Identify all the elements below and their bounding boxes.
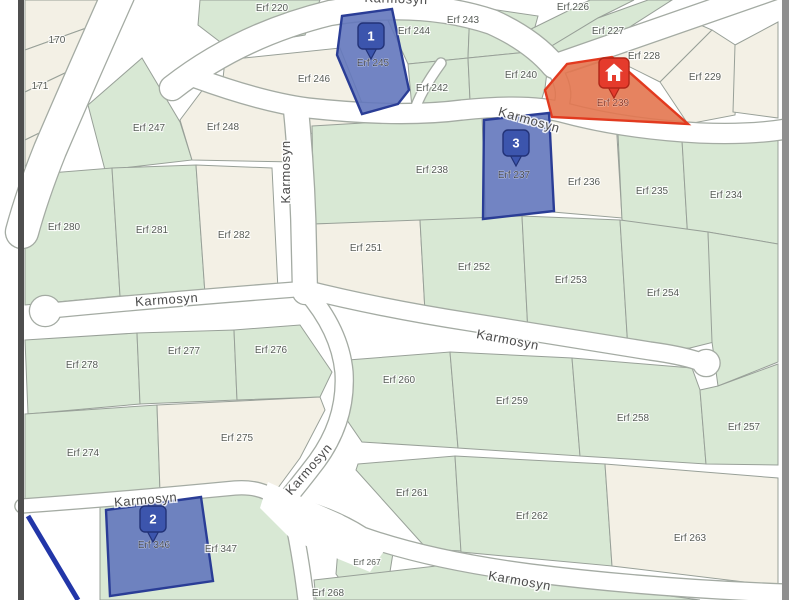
parcel-label-erf-346: Erf 346 xyxy=(138,540,171,551)
parcel-label-erf-251: Erf 251 xyxy=(350,243,383,254)
parcel-erf-260[interactable] xyxy=(340,352,458,448)
parcel-label-erf-261: Erf 261 xyxy=(396,488,429,499)
parcel-label-170: 170 xyxy=(49,35,66,46)
parcel-label-erf-246: Erf 246 xyxy=(298,74,331,85)
parcel-erf-263[interactable] xyxy=(605,464,778,586)
parcel-label-erf-234: Erf 234 xyxy=(710,190,743,201)
map-margin-right xyxy=(789,0,800,600)
parcel-label-erf-226: Erf 226 xyxy=(557,2,590,13)
parcel-label-erf-220: Erf 220 xyxy=(256,3,289,14)
house-door xyxy=(612,75,616,81)
parcel-label-erf-238: Erf 238 xyxy=(416,165,449,176)
parcel-label-erf-268: Erf 268 xyxy=(312,588,345,599)
parcel-label-erf-227: Erf 227 xyxy=(592,26,625,37)
parcel-label-erf-274: Erf 274 xyxy=(67,448,100,459)
street-label-karmosyn-vertical: Karmosyn xyxy=(278,140,293,203)
parcel-label-erf-239: Erf 239 xyxy=(597,98,630,109)
parcel-label-erf-263: Erf 263 xyxy=(674,533,707,544)
parcel-label-erf-229: Erf 229 xyxy=(689,72,722,83)
parcel-label-erf-257: Erf 257 xyxy=(728,422,761,433)
parcel-label-erf-267: Erf 267 xyxy=(353,557,381,567)
map-frame-left xyxy=(18,0,24,600)
marker-pin-3-number: 3 xyxy=(512,136,519,151)
parcel-label-erf-228: Erf 228 xyxy=(628,51,661,62)
parcel-erf-238[interactable] xyxy=(312,116,486,224)
parcel-label-erf-236: Erf 236 xyxy=(568,177,601,188)
parcel-label-erf-237: Erf 237 xyxy=(498,170,531,181)
parcel-label-erf-275: Erf 275 xyxy=(221,433,254,444)
marker-pin-2-number: 2 xyxy=(149,512,156,527)
parcel-label-erf-347: Erf 347 xyxy=(205,544,238,555)
parcel-label-erf-252: Erf 252 xyxy=(458,262,491,273)
parcel-label-erf-277: Erf 277 xyxy=(168,346,201,357)
parcel-label-erf-254: Erf 254 xyxy=(647,288,680,299)
parcel-label-erf-253: Erf 253 xyxy=(555,275,588,286)
parcel-label-erf-242: Erf 242 xyxy=(416,83,449,94)
parcel-label-erf-248: Erf 248 xyxy=(207,122,240,133)
parcel-label-erf-245: Erf 245 xyxy=(357,58,390,69)
parcel-label-erf-243: Erf 243 xyxy=(447,15,480,26)
parcel-label-erf-278: Erf 278 xyxy=(66,360,99,371)
cadastral-map-viewport: 170171Erf 220Erf 244Erf 243Erf 246Erf 24… xyxy=(0,0,800,600)
parcel-label-erf-244: Erf 244 xyxy=(398,26,431,37)
street-karmosyn-vertical xyxy=(296,110,305,292)
parcel-label-erf-258: Erf 258 xyxy=(617,413,650,424)
parcel-erf-278[interactable] xyxy=(25,333,140,414)
parcel-label-171: 171 xyxy=(32,81,49,92)
parcel-label-erf-240: Erf 240 xyxy=(505,70,538,81)
parcel-label-erf-282: Erf 282 xyxy=(218,230,251,241)
marker-pin-1-number: 1 xyxy=(367,29,374,44)
map-frame-right xyxy=(782,0,789,600)
parcel-label-erf-247: Erf 247 xyxy=(133,123,166,134)
parcel-erf-254[interactable] xyxy=(620,220,714,350)
parcel-label-erf-260: Erf 260 xyxy=(383,375,416,386)
parcel-label-erf-281: Erf 281 xyxy=(136,225,169,236)
parcel-label-erf-259: Erf 259 xyxy=(496,396,529,407)
parcel-label-erf-280: Erf 280 xyxy=(48,222,81,233)
parcel-label-erf-262: Erf 262 xyxy=(516,511,549,522)
cadastral-map-canvas[interactable]: 170171Erf 220Erf 244Erf 243Erf 246Erf 24… xyxy=(0,0,800,600)
parcel-erf-258[interactable] xyxy=(572,358,706,464)
parcel-label-erf-235: Erf 235 xyxy=(636,186,669,197)
parcel-erf-277[interactable] xyxy=(137,330,237,404)
parcel-label-erf-276: Erf 276 xyxy=(255,345,288,356)
